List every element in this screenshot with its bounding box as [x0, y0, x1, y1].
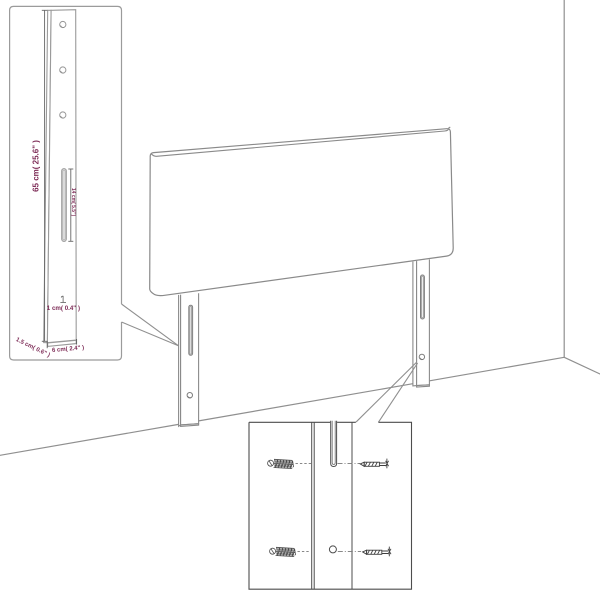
svg-text:65 cm( 25.6" ): 65 cm( 25.6" )	[32, 140, 41, 192]
svg-text:14 cm( 5.5"): 14 cm( 5.5")	[70, 188, 76, 217]
svg-text:1 cm( 0.4" ): 1 cm( 0.4" )	[47, 305, 80, 312]
